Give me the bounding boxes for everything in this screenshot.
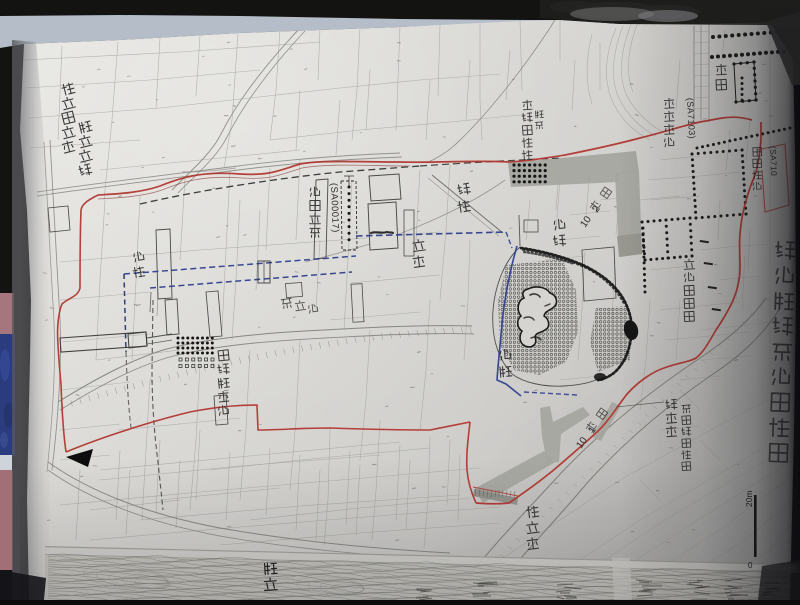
svg-text:(SA00017): (SA00017) [328,183,341,233]
